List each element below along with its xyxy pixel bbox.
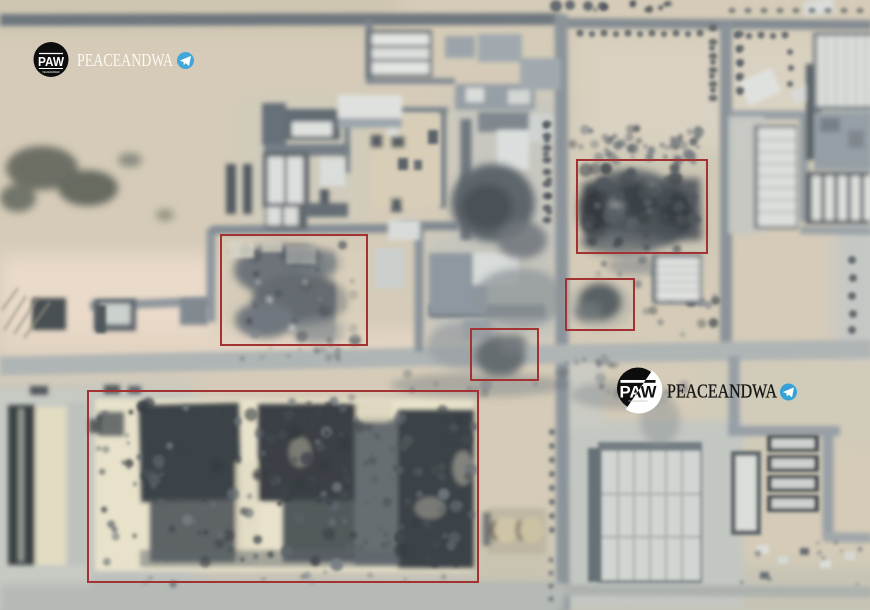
svg-text:PAW: PAW: [38, 54, 65, 69]
svg-text:PEACEANDWAR: PEACEANDWAR: [629, 399, 649, 403]
svg-text:PEACEANDWAR: PEACEANDWAR: [43, 70, 61, 74]
svg-text:PEACEANDWA: PEACEANDWA: [667, 381, 777, 403]
svg-text:PEACEANDWA: PEACEANDWA: [77, 50, 173, 70]
